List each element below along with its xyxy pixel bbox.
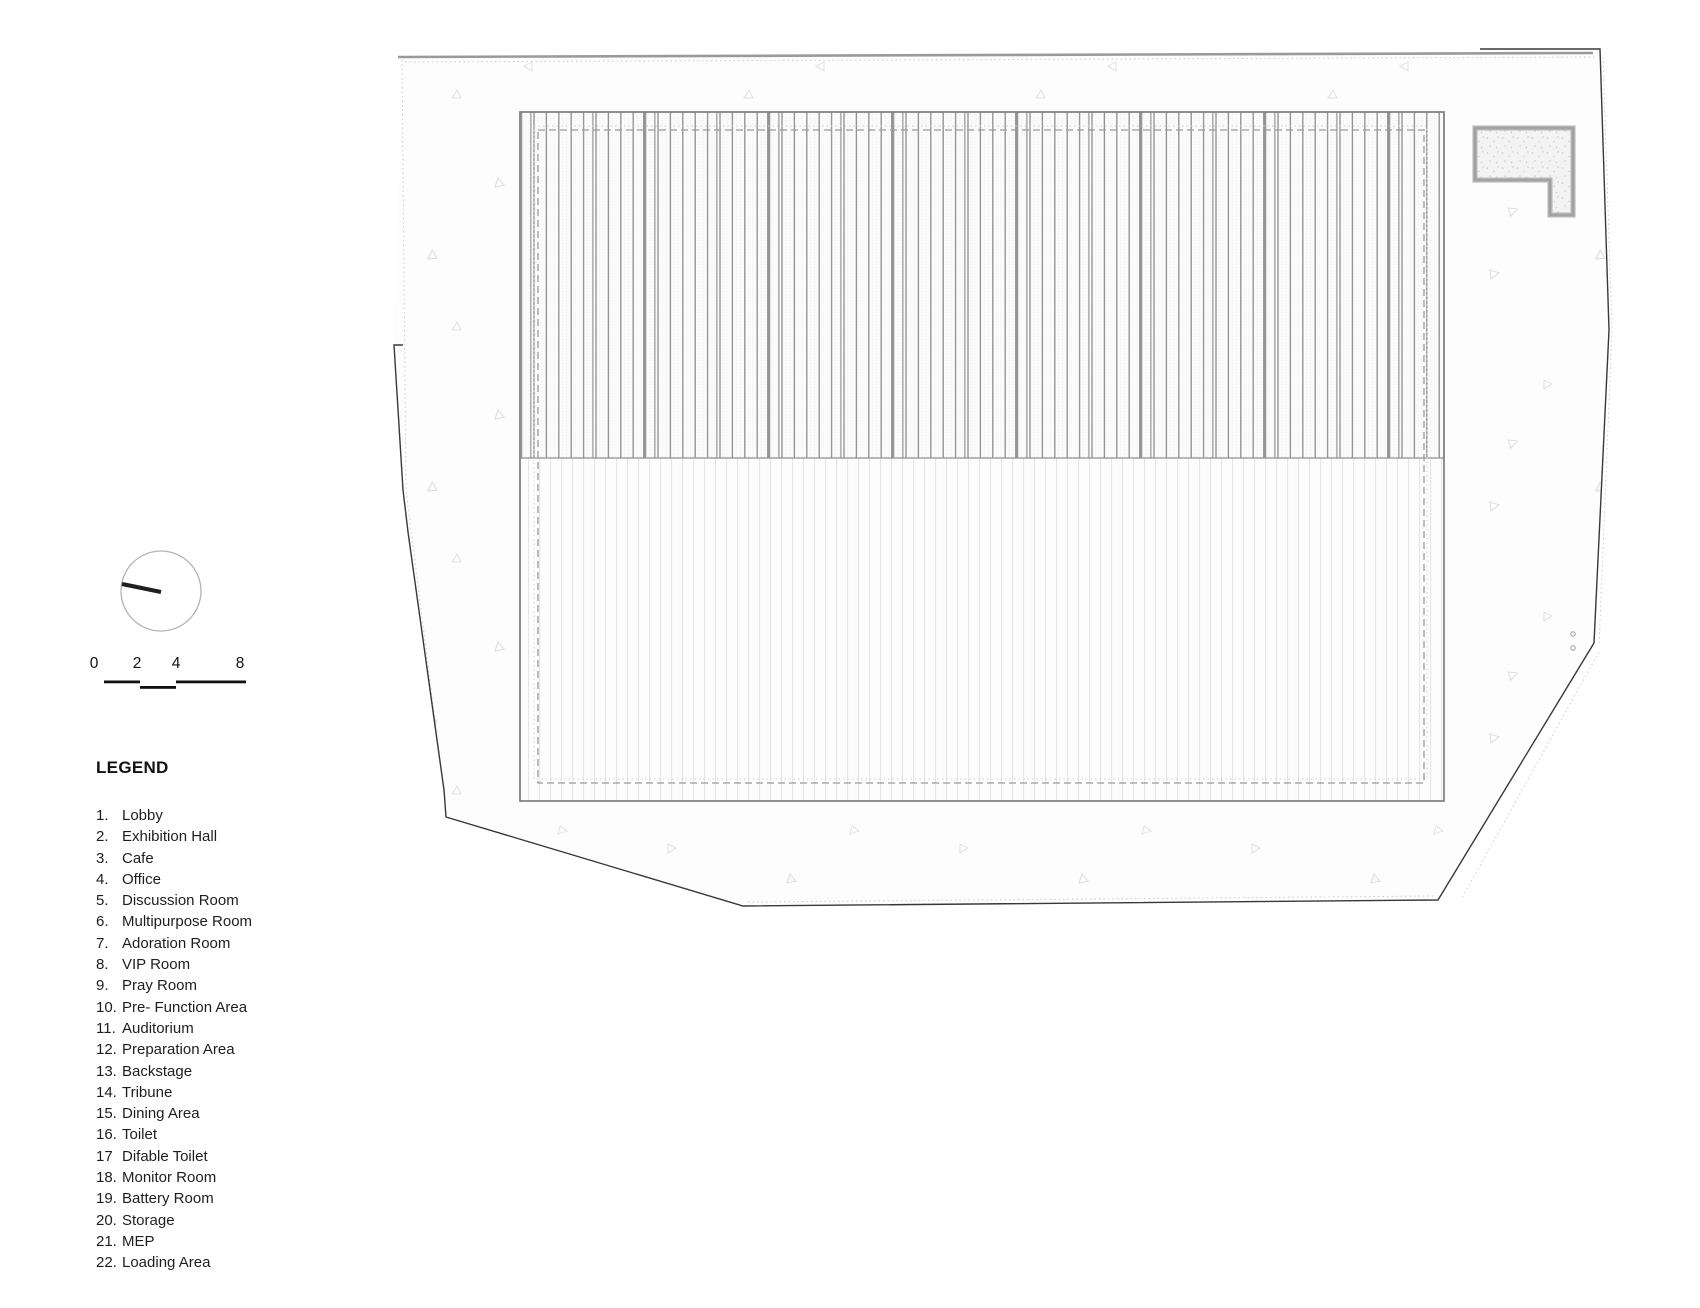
legend-item-number: 15. bbox=[96, 1103, 122, 1124]
legend-list: 1.Lobby 2.Exhibition Hall 3.Cafe 4.Offic… bbox=[96, 805, 252, 1274]
legend-item-number: 11. bbox=[96, 1018, 122, 1039]
legend-item: 3.Cafe bbox=[96, 848, 252, 869]
legend-item-label: Adoration Room bbox=[122, 933, 230, 954]
legend-item: 6.Multipurpose Room bbox=[96, 911, 252, 932]
legend-item-label: Toilet bbox=[122, 1124, 157, 1145]
scale-bar: 0 2 4 8 bbox=[90, 655, 246, 689]
legend-item: 16.Toilet bbox=[96, 1124, 252, 1145]
legend-item: 4.Office bbox=[96, 869, 252, 890]
legend-item: 15.Dining Area bbox=[96, 1103, 252, 1124]
legend-item-number: 17 bbox=[96, 1146, 122, 1167]
legend-item-label: Dining Area bbox=[122, 1103, 200, 1124]
legend-item-label: Pre- Function Area bbox=[122, 997, 247, 1018]
legend-item-label: Preparation Area bbox=[122, 1039, 235, 1060]
site-plan-page: 0 2 4 8 LEGEND 1.Lobby 2.Exhibition Hall… bbox=[0, 0, 1700, 1308]
legend-item-number: 2. bbox=[96, 826, 122, 847]
legend-item: 5.Discussion Room bbox=[96, 890, 252, 911]
legend-item-number: 14. bbox=[96, 1082, 122, 1103]
legend-item: 22.Loading Area bbox=[96, 1252, 252, 1273]
legend-item-number: 4. bbox=[96, 869, 122, 890]
legend-item-label: Pray Room bbox=[122, 975, 197, 996]
legend-item-label: Lobby bbox=[122, 805, 163, 826]
legend-item-label: VIP Room bbox=[122, 954, 190, 975]
legend-item-number: 3. bbox=[96, 848, 122, 869]
legend: LEGEND 1.Lobby 2.Exhibition Hall 3.Cafe … bbox=[96, 758, 252, 1274]
legend-item-label: Cafe bbox=[122, 848, 154, 869]
legend-item: 17Difable Toilet bbox=[96, 1146, 252, 1167]
legend-item-number: 20. bbox=[96, 1210, 122, 1231]
legend-item: 14.Tribune bbox=[96, 1082, 252, 1103]
legend-item: 13.Backstage bbox=[96, 1061, 252, 1082]
roof-flat-deck bbox=[520, 458, 1444, 801]
legend-item-number: 22. bbox=[96, 1252, 122, 1273]
legend-item-number: 10. bbox=[96, 997, 122, 1018]
legend-item-label: MEP bbox=[122, 1231, 155, 1252]
legend-item-number: 21. bbox=[96, 1231, 122, 1252]
legend-item-number: 7. bbox=[96, 933, 122, 954]
legend-item: 7.Adoration Room bbox=[96, 933, 252, 954]
legend-item-label: Multipurpose Room bbox=[122, 911, 252, 932]
legend-item-number: 8. bbox=[96, 954, 122, 975]
legend-item-label: Tribune bbox=[122, 1082, 172, 1103]
legend-item: 11.Auditorium bbox=[96, 1018, 252, 1039]
legend-item: 19.Battery Room bbox=[96, 1188, 252, 1209]
site-plan-drawing: 0 2 4 8 bbox=[0, 0, 1700, 1308]
legend-item-label: Difable Toilet bbox=[122, 1146, 208, 1167]
scale-label-0: 0 bbox=[90, 655, 99, 672]
legend-item-label: Monitor Room bbox=[122, 1167, 216, 1188]
legend-item-label: Storage bbox=[122, 1210, 175, 1231]
legend-item: 8.VIP Room bbox=[96, 954, 252, 975]
legend-item: 12.Preparation Area bbox=[96, 1039, 252, 1060]
legend-item-number: 18. bbox=[96, 1167, 122, 1188]
legend-item-number: 16. bbox=[96, 1124, 122, 1145]
legend-item-number: 5. bbox=[96, 890, 122, 911]
legend-item: 9.Pray Room bbox=[96, 975, 252, 996]
legend-item: 10.Pre- Function Area bbox=[96, 997, 252, 1018]
scale-label-4: 4 bbox=[172, 655, 181, 672]
legend-item-number: 12. bbox=[96, 1039, 122, 1060]
legend-item-label: Loading Area bbox=[122, 1252, 210, 1273]
legend-item-number: 6. bbox=[96, 911, 122, 932]
legend-item-label: Backstage bbox=[122, 1061, 192, 1082]
legend-item-number: 1. bbox=[96, 805, 122, 826]
legend-item-label: Battery Room bbox=[122, 1188, 214, 1209]
legend-item-number: 13. bbox=[96, 1061, 122, 1082]
legend-title: LEGEND bbox=[96, 758, 252, 778]
legend-item-label: Discussion Room bbox=[122, 890, 239, 911]
legend-item-label: Exhibition Hall bbox=[122, 826, 217, 847]
scale-label-8: 8 bbox=[236, 655, 245, 672]
legend-item-number: 19. bbox=[96, 1188, 122, 1209]
main-building bbox=[520, 112, 1444, 801]
legend-item-number: 9. bbox=[96, 975, 122, 996]
north-arrow-icon bbox=[121, 551, 201, 631]
scale-label-2: 2 bbox=[133, 655, 142, 672]
legend-item: 21.MEP bbox=[96, 1231, 252, 1252]
legend-item: 1.Lobby bbox=[96, 805, 252, 826]
legend-item: 20.Storage bbox=[96, 1210, 252, 1231]
legend-item-label: Auditorium bbox=[122, 1018, 194, 1039]
legend-item-label: Office bbox=[122, 869, 161, 890]
legend-item: 18.Monitor Room bbox=[96, 1167, 252, 1188]
legend-item: 2.Exhibition Hall bbox=[96, 826, 252, 847]
